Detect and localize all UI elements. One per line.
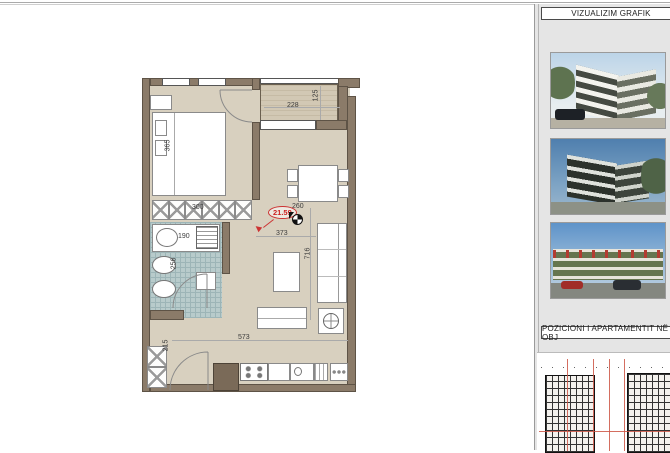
dimline-125: [320, 86, 321, 120]
render-building-facade: [550, 222, 666, 299]
dim-bathroom-length: 256: [170, 258, 177, 270]
grid-line-red: [624, 359, 625, 451]
car-icon: [613, 280, 641, 290]
render-facade-left: [567, 154, 617, 205]
dim-balcony-width: 228: [287, 102, 299, 109]
tree-icon: [647, 79, 666, 113]
tree-icon: [641, 151, 666, 201]
sidebar: VIZUALIZIM GRAFIK POZICIONI I APARTAMENT…: [534, 4, 670, 450]
car-icon: [555, 109, 585, 120]
car-icon: [561, 281, 583, 289]
grid-line-red: [593, 359, 594, 451]
dim-living-width: 573: [238, 334, 250, 341]
site-plan-thumbnail: [537, 352, 670, 450]
grid-line-red: [567, 359, 568, 451]
dim-hall-width: 373: [276, 230, 288, 237]
building-wing-right: [627, 373, 670, 453]
render-building-corner: [550, 52, 666, 129]
dimline-716: [310, 208, 311, 320]
dim-bedroom-length: 365: [164, 140, 171, 152]
render-ground: [551, 202, 665, 214]
grid-line-red: [609, 359, 610, 451]
drawing-sheet: { "sidebar": { "header_visualization": "…: [0, 0, 670, 450]
dim-wardrobe-width: 300: [192, 204, 204, 211]
building-wing-left: [545, 375, 595, 453]
dimline-228: [264, 107, 340, 108]
position-header-label: POZICIONI I APARTAMENTIT NË OBJ: [542, 324, 670, 342]
dimline-573: [172, 340, 348, 341]
grid-ticks: [541, 367, 667, 368]
visualization-header: VIZUALIZIM GRAFIK: [541, 7, 670, 20]
cursor-arrow-icon: [289, 212, 294, 219]
dim-balcony-depth: 125: [312, 90, 319, 102]
sheet-top-line: [0, 2, 670, 3]
tree-icon: [550, 61, 575, 105]
dim-bathroom-width: 190: [178, 233, 190, 240]
dim-entry-length: 215: [162, 340, 169, 352]
position-header: POZICIONI I APARTAMENTIT NË OBJ: [541, 326, 670, 339]
render-awnings-red: [553, 250, 662, 258]
door-arcs: [142, 78, 360, 394]
grid-line-red-horizontal: [539, 431, 670, 432]
dim-living-length: 716: [304, 248, 311, 260]
floor-plan: 228 125 365 300 190 256 260 373 716 573 …: [142, 78, 360, 394]
visualization-header-label: VIZUALIZIM GRAFIK: [571, 9, 650, 18]
render-building-street: [550, 138, 666, 215]
